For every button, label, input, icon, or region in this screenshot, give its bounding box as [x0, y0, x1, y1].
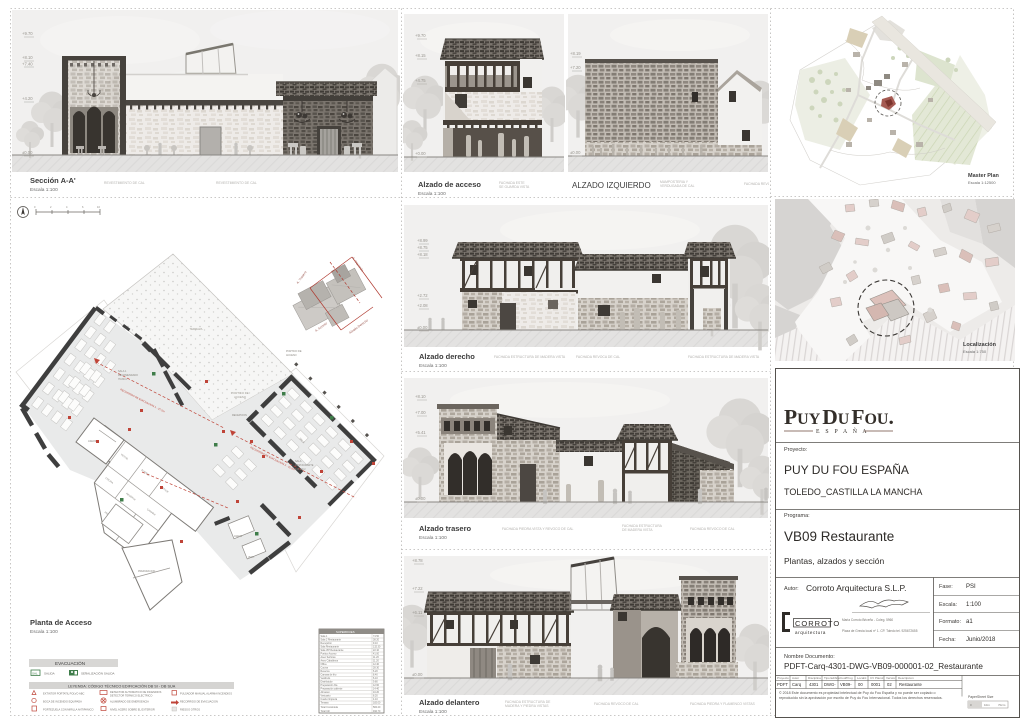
- svg-text:ALZADO IZQUIERDO: ALZADO IZQUIERDO: [572, 181, 651, 190]
- svg-text:Escala 1:100: Escala 1:100: [418, 191, 446, 197]
- svg-text:4301: 4301: [809, 682, 819, 687]
- svg-text:LEYENDA: CÓDIGO TÉCNICO EDIFIC: LEYENDA: CÓDIGO TÉCNICO EDIFICACIÓN DB S…: [68, 683, 176, 688]
- svg-text:Alzado delantero: Alzado delantero: [419, 698, 480, 707]
- svg-text:A. Trasero: A. Trasero: [296, 270, 308, 284]
- svg-text:EXTINTOR PORTATIL POLVO ABC: EXTINTOR PORTATIL POLVO ABC: [43, 692, 84, 696]
- svg-text:+5.41: +5.41: [415, 430, 426, 435]
- svg-text:10: 10: [97, 205, 100, 209]
- svg-text:BOCA DE INCENDIO EQUIPADA: BOCA DE INCENDIO EQUIPADA: [43, 700, 82, 704]
- svg-text:4: 4: [66, 205, 68, 209]
- svg-text:VB09-: VB09-: [840, 682, 852, 687]
- svg-text:Autor: Autor: [792, 676, 799, 680]
- svg-text:Nombre Documento:: Nombre Documento:: [784, 654, 835, 660]
- svg-text:SALIDA: SALIDA: [44, 671, 55, 675]
- svg-text:SALA: SALA: [295, 460, 302, 463]
- svg-text:0001: 0001: [871, 682, 881, 687]
- svg-text:SEÑALIZACIÓN SALIDA: SEÑALIZACIÓN SALIDA: [81, 670, 115, 675]
- svg-text:VEST.: VEST.: [248, 557, 255, 559]
- svg-text:Terraza: Terraza: [321, 702, 330, 705]
- svg-text:FACHADA PIEDRA VISTA Y REVOCO: FACHADA PIEDRA VISTA Y REVOCO DE CAL: [502, 527, 574, 531]
- svg-text:Escala 1:100: Escala 1:100: [30, 187, 58, 193]
- svg-text:+7.20: +7.20: [570, 65, 581, 70]
- svg-text:+8.99: +8.99: [417, 238, 428, 243]
- svg-text:FACHADA PIEDRA Y FLAMENCO VIST: FACHADA PIEDRA Y FLAMENCO VISTAS: [690, 702, 756, 706]
- svg-text:Total Construida: Total Construida: [321, 706, 339, 709]
- svg-text:+7.40: +7.40: [22, 62, 33, 67]
- svg-text:Programa:: Programa:: [784, 513, 810, 519]
- svg-text:RECORRIDO DE EVACUACION: RECORRIDO DE EVACUACION: [180, 700, 218, 704]
- svg-text:FACHADA REVOCA DE CAL: FACHADA REVOCA DE CAL: [744, 182, 788, 186]
- svg-text:© 2018 Este documento es propi: © 2018 Este documento es propiedad intel…: [779, 691, 936, 695]
- svg-text:RECEPCION: RECEPCION: [232, 414, 247, 417]
- svg-text:PaperSheet Size: PaperSheet Size: [968, 695, 994, 699]
- svg-text:+9.70: +9.70: [22, 31, 33, 36]
- svg-text:RECOMENDADO: RECOMENDADO: [118, 374, 138, 377]
- svg-text:Disciplina: Disciplina: [808, 676, 821, 680]
- svg-text:+8.10: +8.10: [415, 394, 426, 399]
- svg-text:a1: a1: [966, 619, 973, 625]
- svg-text:SALA 1: SALA 1: [118, 370, 127, 373]
- svg-text:NIVEL ACERO SOBRE EL EXTERIOR: NIVEL ACERO SOBRE EL EXTERIOR: [110, 708, 155, 712]
- svg-text:E S P A Ñ A: E S P A Ñ A: [816, 427, 869, 435]
- svg-text:PREPARACION: PREPARACION: [138, 570, 155, 573]
- svg-text:+0.00: +0.00: [415, 151, 426, 156]
- svg-text:0: 0: [34, 205, 36, 209]
- svg-text:SUPERFICIES: SUPERFICIES: [336, 630, 355, 634]
- svg-text:PDFT: PDFT: [777, 682, 788, 687]
- svg-text:Fase:: Fase:: [939, 584, 953, 590]
- svg-text:+8.75: +8.75: [417, 245, 428, 250]
- svg-text:SE GUARDA VISTA: SE GUARDA VISTA: [499, 185, 530, 189]
- svg-text:VERDUGADA DE CAL: VERDUGADA DE CAL: [660, 184, 695, 188]
- svg-text:DE MADERA VISTA: DE MADERA VISTA: [622, 528, 653, 532]
- svg-text:+7.22: +7.22: [412, 586, 423, 591]
- svg-text:ASEOS: ASEOS: [88, 440, 97, 443]
- svg-text:Version: Version: [886, 676, 896, 680]
- svg-text:PDFT-Carq-4301-DWG-VB09-000001: PDFT-Carq-4301-DWG-VB09-000001-02_Restau…: [784, 662, 983, 671]
- svg-text:Escala 1:750: Escala 1:750: [963, 349, 987, 354]
- svg-text:132.30m²: 132.30m²: [295, 468, 306, 471]
- svg-text:Escala 1:12500: Escala 1:12500: [968, 180, 996, 185]
- svg-text:+9.70: +9.70: [415, 33, 426, 38]
- svg-text:±0.00: ±0.00: [417, 325, 428, 330]
- svg-text:±0.00: ±0.00: [415, 496, 426, 501]
- svg-text:76.80m²: 76.80m²: [118, 378, 127, 381]
- svg-text:+8.18: +8.18: [417, 252, 428, 257]
- svg-text:PORTEZUELA CON MIRILLA ANTIPAN: PORTEZUELA CON MIRILLA ANTIPANICO: [43, 708, 94, 712]
- svg-text:584.20: 584.20: [373, 706, 381, 709]
- svg-text:Tipo Edificio: Tipo Edificio: [824, 676, 841, 680]
- svg-text:Junio/2018: Junio/2018: [966, 637, 996, 643]
- svg-text:Alzado de acceso: Alzado de acceso: [418, 180, 481, 189]
- svg-text:Alzado derecho: Alzado derecho: [419, 352, 475, 361]
- svg-text:RESTAURANTE: RESTAURANTE: [295, 464, 314, 467]
- svg-text:+4.20: +4.20: [22, 96, 33, 101]
- svg-text:Escala 1:100: Escala 1:100: [30, 629, 58, 635]
- svg-text:02: 02: [887, 682, 892, 687]
- svg-text:+2.08: +2.08: [417, 303, 428, 308]
- svg-text:Fecha:: Fecha:: [939, 637, 956, 643]
- svg-text:ACCESO: ACCESO: [234, 395, 247, 399]
- svg-text:PORTICO DE: PORTICO DE: [286, 350, 302, 353]
- svg-text:00: 00: [858, 682, 863, 687]
- svg-text:Escala:: Escala:: [939, 602, 958, 608]
- svg-text:1:100: 1:100: [966, 602, 982, 608]
- svg-text:Maria Corroto Briceño - Coleg.: Maria Corroto Briceño - Coleg. 5960: [842, 618, 893, 622]
- svg-text:182.00: 182.00: [373, 702, 381, 705]
- svg-text:Localiz.: Localiz.: [857, 676, 867, 680]
- svg-text:FACHADA REVOCA DE CAL: FACHADA REVOCA DE CAL: [576, 355, 620, 359]
- svg-text:EVACUACIÓN: EVACUACIÓN: [55, 660, 85, 666]
- svg-text:Corroto Arquitectura S.L.P.: Corroto Arquitectura S.L.P.: [806, 583, 906, 593]
- svg-text:+4.75: +4.75: [415, 78, 426, 83]
- svg-text:Total Util: Total Util: [321, 710, 331, 713]
- svg-text:PUY DU FOU ESPAÑA: PUY DU FOU ESPAÑA: [784, 463, 909, 477]
- svg-text:10m: 10m: [984, 703, 990, 707]
- svg-text:Restaurante: Restaurante: [899, 682, 922, 687]
- svg-text:FACHADA ESTRUCTURA DE MADERA V: FACHADA ESTRUCTURA DE MADERA VISTA: [688, 355, 760, 359]
- svg-text:TERRAZA: TERRAZA: [189, 327, 202, 331]
- svg-text:DETECTOR TERMICO ELECTRICO: DETECTOR TERMICO ELECTRICO: [110, 693, 152, 697]
- svg-text:Autor:: Autor:: [784, 586, 799, 592]
- svg-text:Formato:: Formato:: [939, 619, 961, 625]
- svg-text:Escala 1:100: Escala 1:100: [419, 709, 447, 715]
- svg-text:VB09 Restaurante: VB09 Restaurante: [784, 529, 894, 544]
- svg-text:ACCESO: ACCESO: [286, 354, 297, 357]
- svg-text:ASEOS: ASEOS: [234, 535, 242, 538]
- svg-text:2: 2: [50, 205, 52, 209]
- svg-text:TOLEDO_CASTILLA LA MANCHA: TOLEDO_CASTILLA LA MANCHA: [784, 487, 922, 497]
- svg-text:Master Plan: Master Plan: [968, 173, 1000, 179]
- svg-text:FACHADA REVOCO DE CAL: FACHADA REVOCO DE CAL: [594, 702, 639, 706]
- svg-text:Planta de Acceso: Planta de Acceso: [30, 618, 92, 627]
- svg-text:reproducido sin la aprobación: reproducido sin la aprobación por escrit…: [779, 696, 943, 700]
- svg-text:FACHADA ESTRUCTURA DE MADERA V: FACHADA ESTRUCTURA DE MADERA VISTA: [494, 355, 566, 359]
- svg-text:+6.11: +6.11: [412, 610, 423, 615]
- svg-text:ALUMBRADO DE EMERGENCIA: ALUMBRADO DE EMERGENCIA: [110, 700, 149, 704]
- svg-text:6: 6: [82, 205, 84, 209]
- svg-text:RIESGO OTROS: RIESGO OTROS: [180, 708, 200, 712]
- svg-text:Escala 1:100: Escala 1:100: [419, 535, 447, 541]
- svg-text:SAL: SAL: [32, 671, 38, 675]
- svg-text:+8.19: +8.19: [570, 51, 581, 56]
- svg-text:PSI: PSI: [966, 584, 976, 590]
- svg-text:+2.72: +2.72: [417, 293, 428, 298]
- svg-text:Proyecto:: Proyecto:: [784, 447, 808, 453]
- svg-text:FACHADA REVOCO DE CAL: FACHADA REVOCO DE CAL: [690, 527, 735, 531]
- svg-text:+7.00: +7.00: [415, 410, 426, 415]
- svg-text:Sección A-A': Sección A-A': [30, 176, 76, 185]
- svg-text:REVESTIMIENTO DE CAL: REVESTIMIENTO DE CAL: [104, 181, 145, 185]
- svg-text:70cm: 70cm: [998, 703, 1006, 707]
- svg-text:Cod/Prog: Cod/Prog: [840, 676, 853, 680]
- svg-text:Localización: Localización: [963, 342, 997, 348]
- svg-text:Plaza de Grecia local nº 1. C: Plaza de Grecia local nº 1. CP. Toledo t…: [842, 629, 918, 633]
- svg-text:±0.00: ±0.00: [22, 150, 33, 155]
- svg-text:REVESTIMIENTO DE CAL: REVESTIMIENTO DE CAL: [216, 181, 257, 185]
- svg-text:+8.15: +8.15: [415, 53, 426, 58]
- svg-text:CV Planol: CV Planol: [870, 676, 884, 680]
- svg-text:Descripcion: Descripcion: [898, 676, 914, 680]
- svg-text:±0.00: ±0.00: [412, 672, 423, 677]
- svg-text:+8.10: +8.10: [22, 55, 33, 60]
- svg-text:arquitectura: arquitectura: [795, 630, 826, 635]
- svg-text:Plantas, alzados y sección: Plantas, alzados y sección: [784, 556, 884, 566]
- svg-text:Alzado Derecho: Alzado Derecho: [348, 318, 369, 335]
- svg-text:Escala 1:100: Escala 1:100: [419, 363, 447, 369]
- svg-text:492.70: 492.70: [373, 710, 381, 713]
- svg-text:MADERA Y PIEDRA VISTAS: MADERA Y PIEDRA VISTAS: [505, 704, 549, 708]
- svg-text:DWG-: DWG-: [824, 682, 836, 687]
- svg-text:±0.00: ±0.00: [570, 150, 581, 155]
- svg-text:PULSADOR MANUAL ALARMA INCENDI: PULSADOR MANUAL ALARMA INCENDIOS: [180, 692, 232, 696]
- svg-text:Alzado trasero: Alzado trasero: [419, 524, 472, 533]
- svg-text:DETECTOR AUTOMATICO DE INCENDI: DETECTOR AUTOMATICO DE INCENDIOS: [110, 690, 162, 694]
- svg-text:Proyecto: Proyecto: [777, 676, 789, 680]
- svg-text:+8.78: +8.78: [412, 558, 423, 563]
- svg-text:Carq: Carq: [792, 682, 802, 687]
